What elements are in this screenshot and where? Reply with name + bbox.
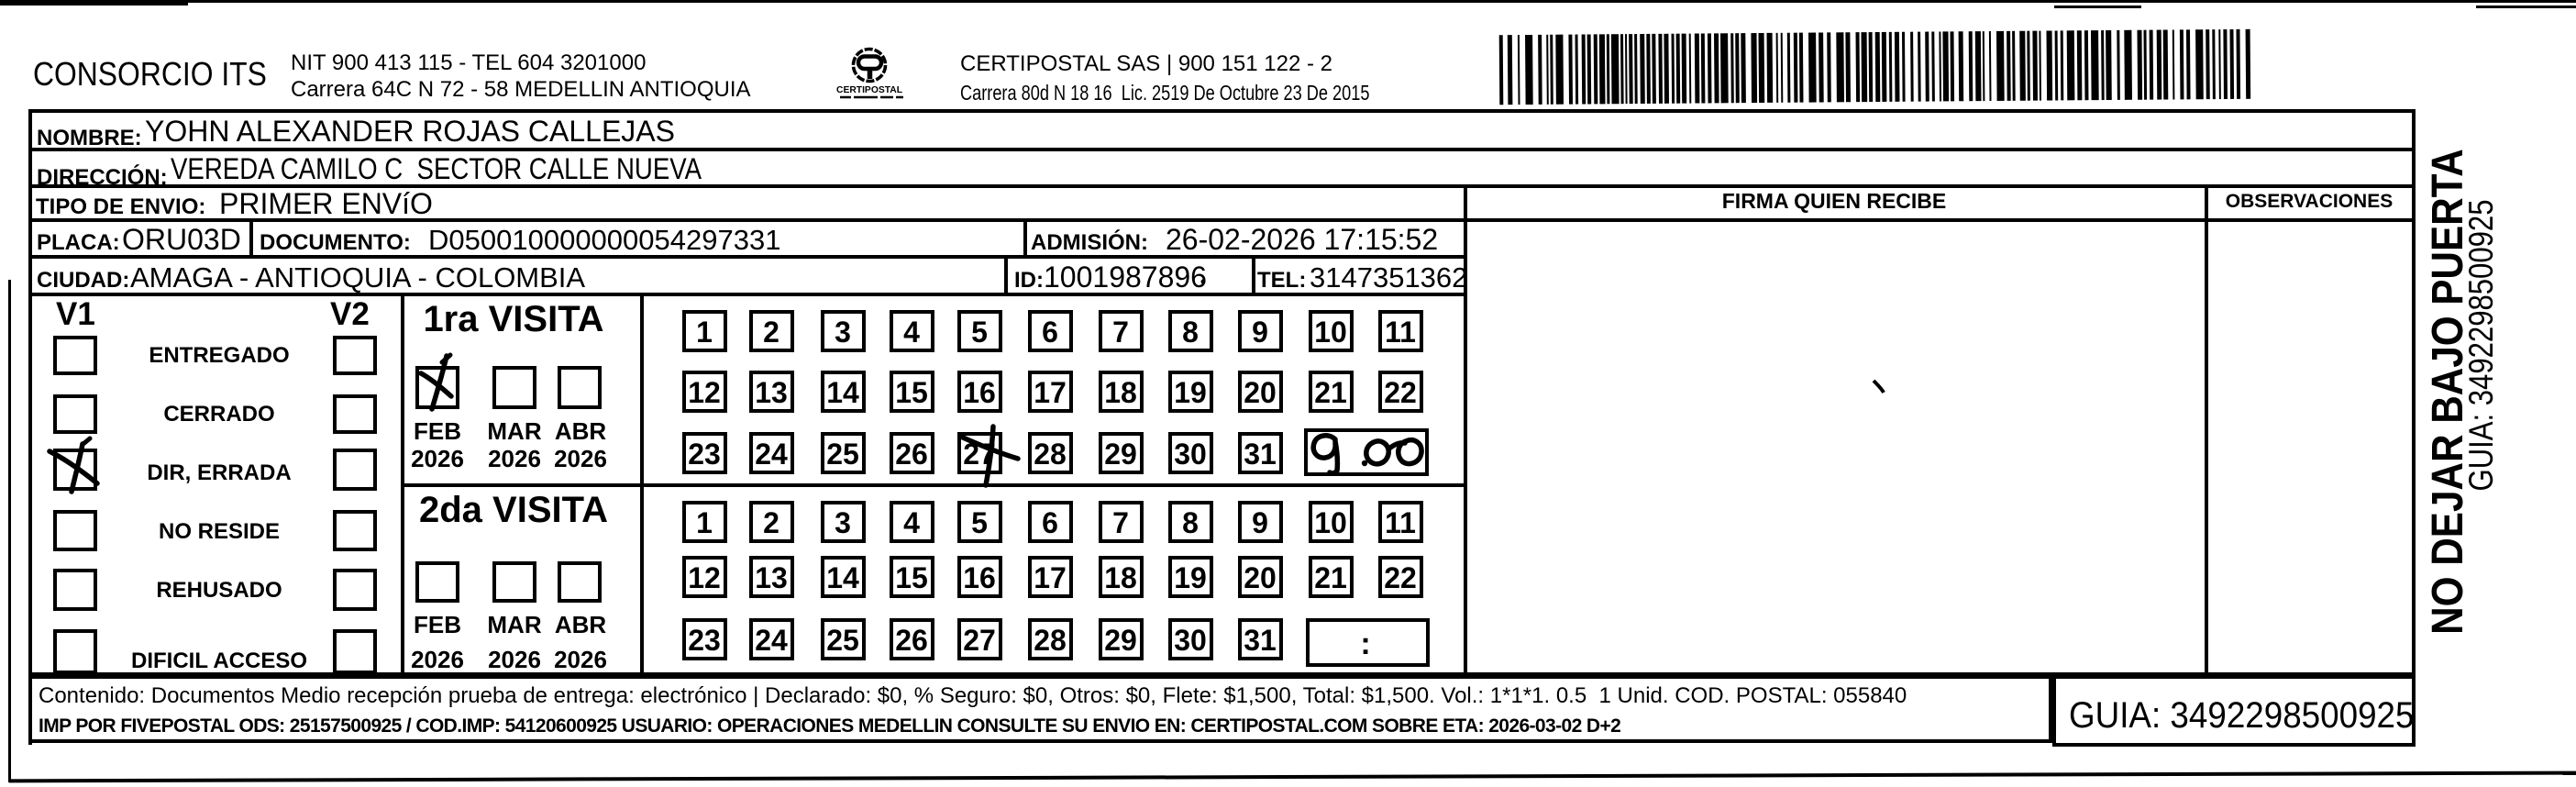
svg-text:CERTIPOSTAL: CERTIPOSTAL <box>836 84 903 95</box>
